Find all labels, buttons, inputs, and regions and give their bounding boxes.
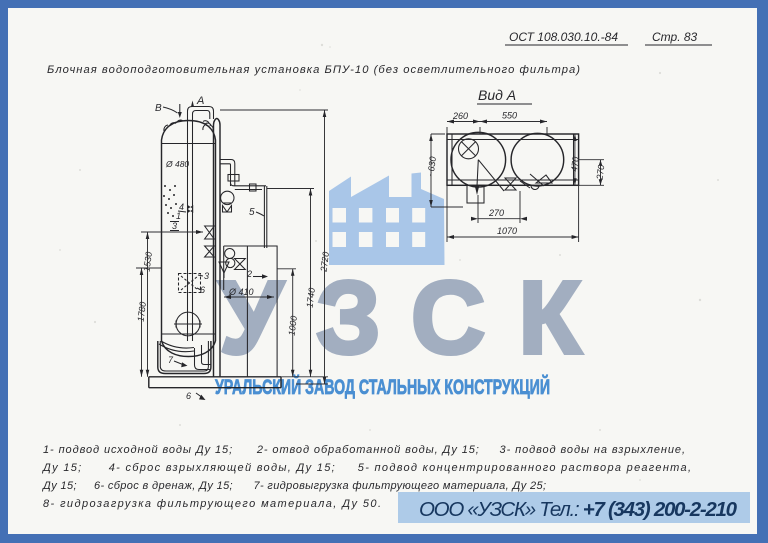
svg-text:2: 2 [246, 269, 252, 279]
svg-text:Ду 15; 6- сброс в дренаж: Ду 15; 6- сброс в дренаж, Ду 15; 7- гидр… [41, 480, 546, 492]
svg-text:8- гидрозагрузка фильтрующего: 8- гидрозагрузка фильтрующего материала,… [43, 498, 381, 510]
svg-text:Ø 480: Ø 480 [165, 159, 189, 169]
svg-text:470: 470 [569, 156, 581, 172]
svg-text:Вид А: Вид А [478, 87, 516, 103]
svg-text:Блочная водоподготовительная: Блочная водоподготовительная установка Б… [47, 64, 580, 76]
svg-text:550: 550 [502, 111, 517, 121]
svg-text:260: 260 [452, 111, 468, 121]
svg-text:Ø 410: Ø 410 [228, 287, 254, 297]
svg-text:УЗСК: УЗСК [219, 260, 614, 375]
svg-text:Стр. 83: Стр. 83 [652, 30, 698, 44]
svg-text:1070: 1070 [497, 226, 517, 236]
svg-text:3: 3 [172, 221, 177, 231]
svg-text:В: В [155, 103, 162, 114]
svg-text:А: А [196, 95, 204, 107]
svg-text:3: 3 [204, 271, 209, 281]
svg-text:1- подвод исходной воды Ду: 1- подвод исходной воды Ду 15; 2- отвод … [43, 444, 685, 456]
svg-text:1: 1 [176, 211, 181, 221]
svg-text:ООО «УЗСК» Тел.: +7 (343) 200-: ООО «УЗСК» Тел.: +7 (343) 200-2-210 [419, 498, 738, 521]
svg-text:270: 270 [594, 164, 606, 181]
svg-text:6: 6 [186, 391, 191, 401]
svg-text:270: 270 [488, 208, 504, 218]
svg-text:ОСТ 108.030.10.-84: ОСТ 108.030.10.-84 [509, 30, 618, 44]
svg-text:5: 5 [249, 207, 255, 218]
